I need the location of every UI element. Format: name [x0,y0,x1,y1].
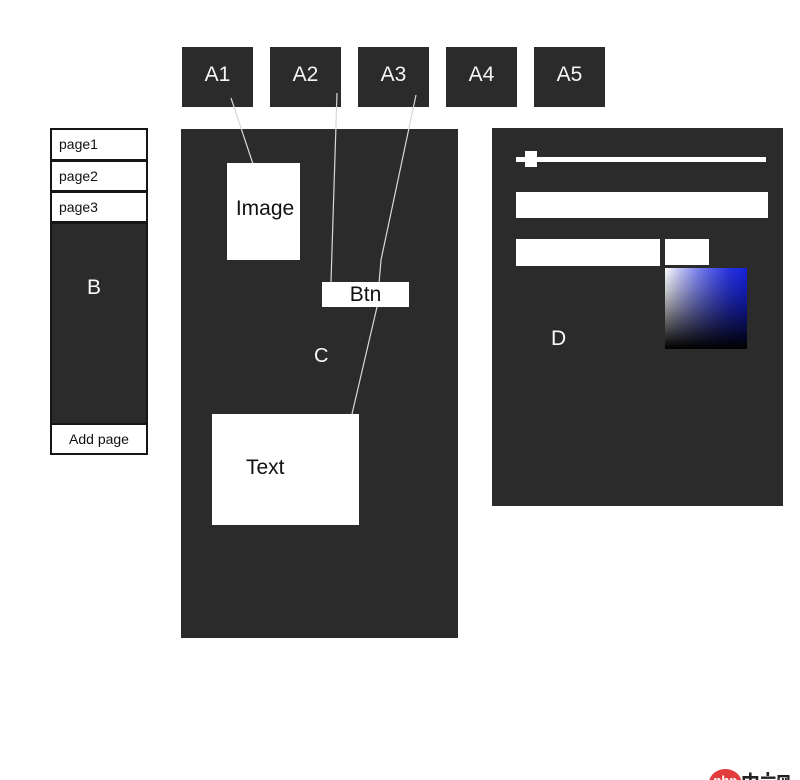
svg-text:php: php [713,773,737,780]
